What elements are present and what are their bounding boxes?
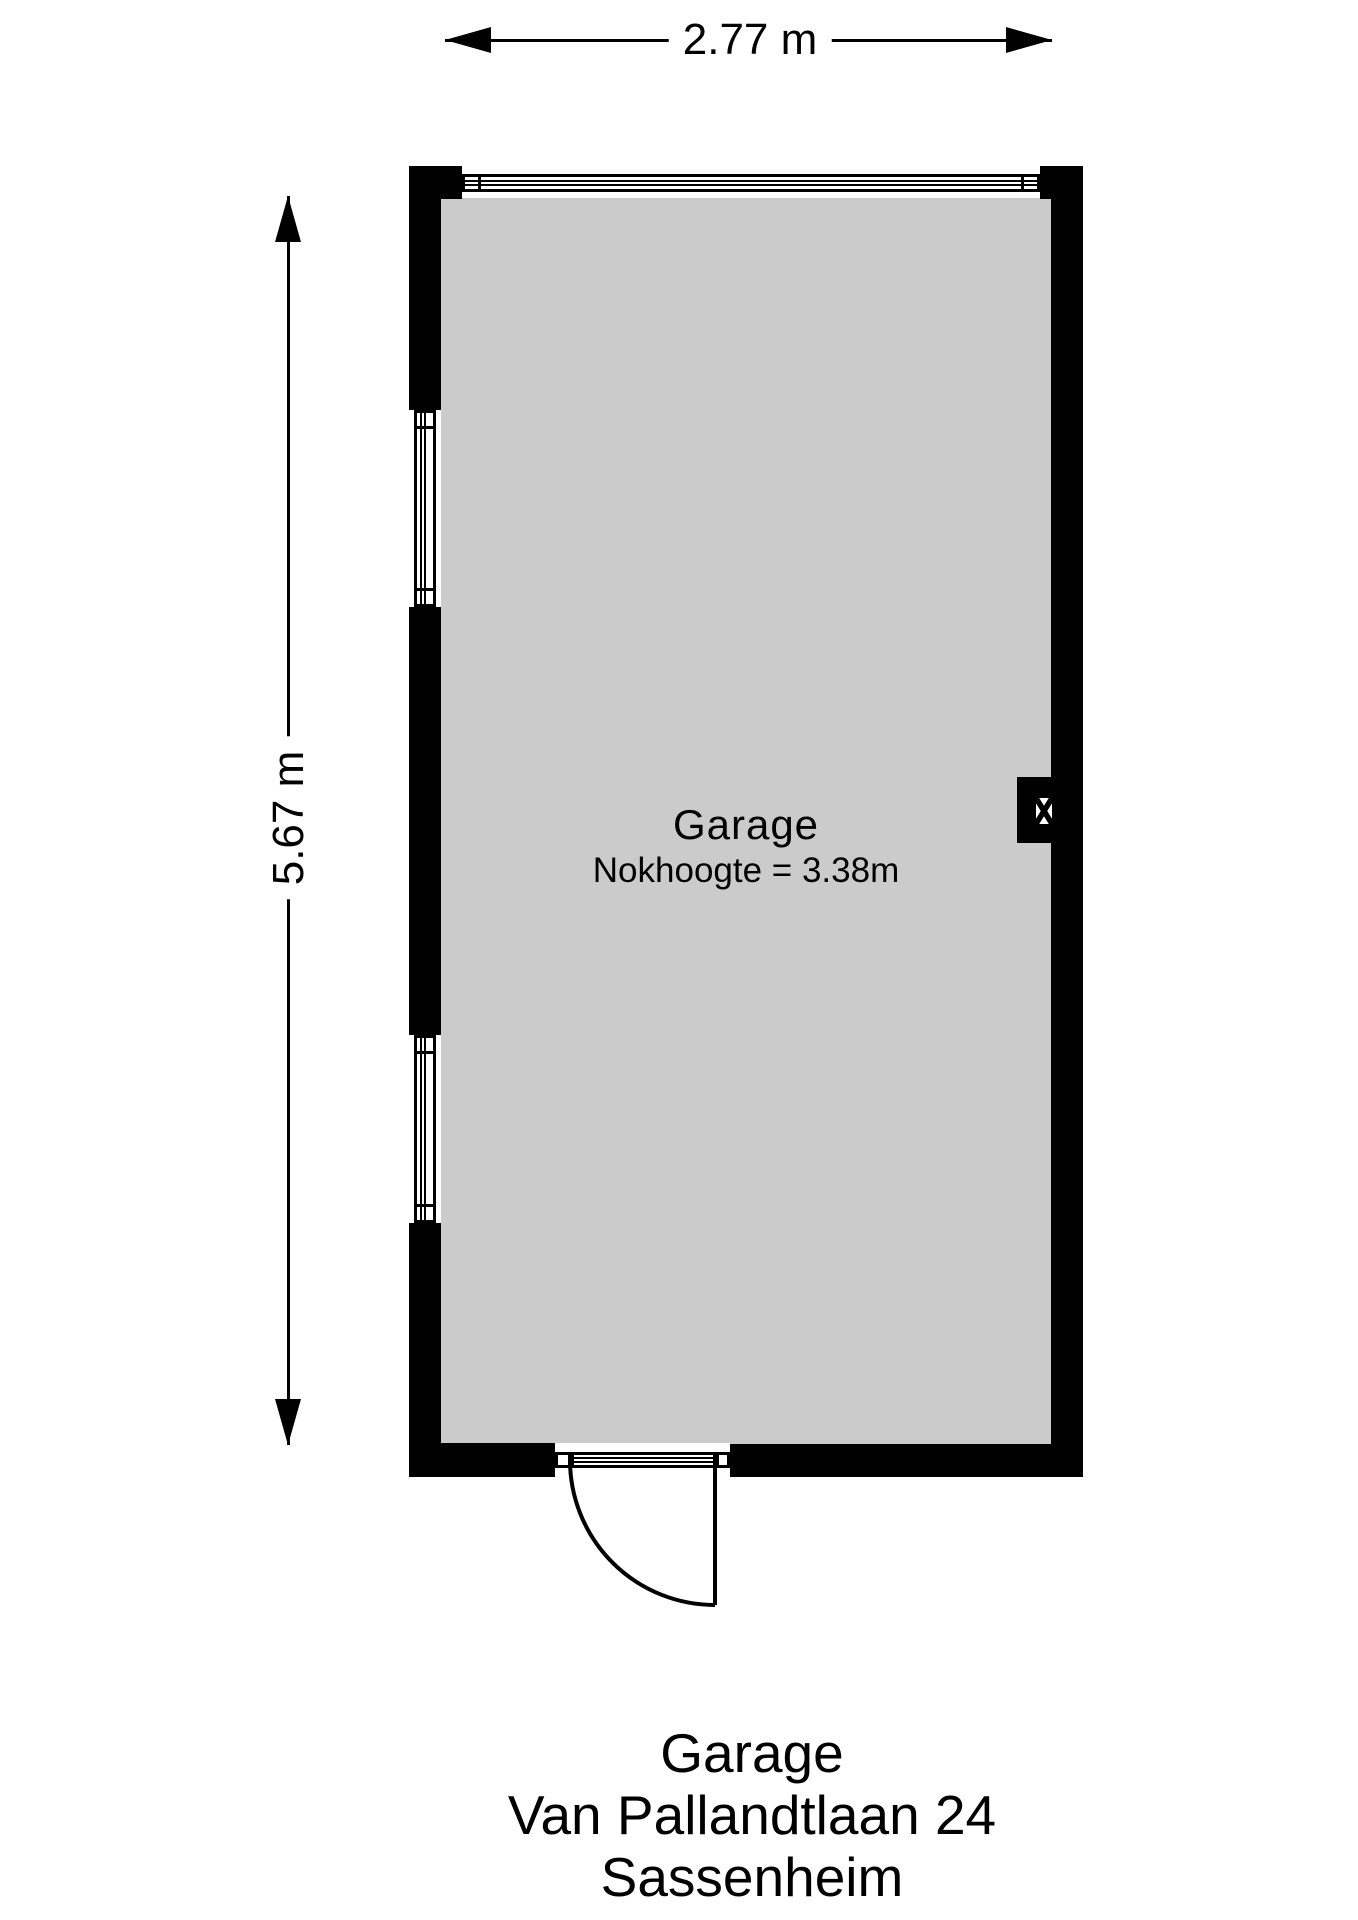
window-glass-line bbox=[420, 413, 422, 604]
room-label: Garage Nokhoogte = 3.38m bbox=[593, 800, 899, 892]
width-dimension-label: 2.77 m bbox=[669, 16, 832, 64]
plan-caption: Garage Van Pallandtlaan 24 Sassenheim bbox=[508, 1722, 996, 1908]
wall-corner-bottom-left bbox=[409, 1443, 555, 1477]
flue-icon bbox=[1036, 798, 1052, 824]
arrow-up-icon bbox=[275, 196, 301, 242]
window-glass-line bbox=[465, 180, 1037, 182]
window-top bbox=[462, 174, 1040, 192]
window-mullion bbox=[478, 177, 481, 189]
window-glass-line bbox=[424, 413, 426, 604]
room-ridge-height: Nokhoogte = 3.38m bbox=[593, 850, 899, 892]
caption-line-address: Van Pallandtlaan 24 bbox=[508, 1784, 996, 1846]
floorplan-canvas: 2.77 m 5.67 m bbox=[0, 0, 1358, 1920]
window-mullion bbox=[417, 588, 433, 591]
window-left-upper bbox=[414, 410, 436, 607]
height-dimension-label: 5.67 m bbox=[265, 737, 313, 900]
window-mullion bbox=[417, 1051, 433, 1054]
window-mullion bbox=[417, 426, 433, 429]
window-glass-line bbox=[424, 1038, 426, 1220]
wall-corner-top-right bbox=[1040, 166, 1083, 199]
arrow-right-icon bbox=[1006, 27, 1052, 53]
caption-line-title: Garage bbox=[508, 1722, 996, 1784]
window-glass-line bbox=[420, 1038, 422, 1220]
caption-line-city: Sassenheim bbox=[508, 1846, 996, 1908]
door-swing-arc bbox=[540, 1440, 740, 1620]
room-name: Garage bbox=[593, 800, 899, 850]
window-mullion bbox=[1021, 177, 1024, 189]
window-left-lower bbox=[414, 1035, 436, 1223]
arrow-down-icon bbox=[275, 1399, 301, 1445]
arrow-left-icon bbox=[445, 27, 491, 53]
wall-corner-top-left bbox=[409, 166, 462, 199]
window-mullion bbox=[417, 1204, 433, 1207]
window-glass-line bbox=[465, 184, 1037, 186]
